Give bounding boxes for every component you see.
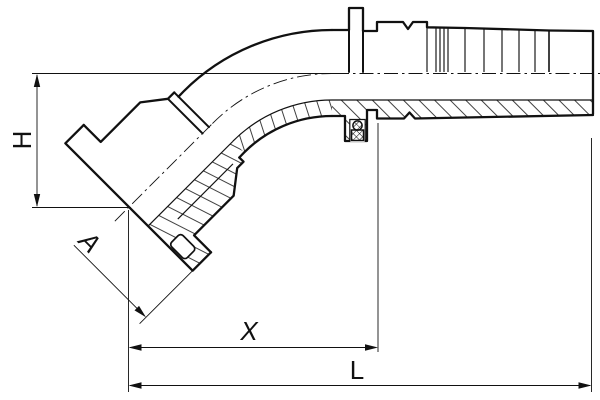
x-arrow-right <box>365 344 378 350</box>
collar-edge-lines <box>349 30 363 72</box>
x-arrow-left <box>129 344 142 350</box>
hose-tail <box>332 8 593 142</box>
weld-ring-edges <box>168 92 209 133</box>
h-label: H <box>7 131 37 150</box>
h-arrow-down <box>34 194 40 207</box>
oring-backup-ring <box>352 130 364 141</box>
flange-plate-back-upper <box>84 63 175 154</box>
a-extension-line <box>140 262 202 324</box>
dimension-X: X <box>129 123 379 392</box>
hose-tail-top-profile <box>332 8 593 114</box>
h-arrow-up <box>34 74 40 87</box>
a-label: A <box>72 224 107 259</box>
l-label: L <box>350 355 364 385</box>
dimension-H: H <box>7 74 335 208</box>
l-arrow-left <box>129 382 142 388</box>
nipple-section-hatch <box>332 100 593 141</box>
technical-drawing: H A X L <box>0 0 600 400</box>
x-label: X <box>239 316 259 346</box>
barb-ridges <box>427 27 549 72</box>
section-hatching <box>148 100 593 271</box>
elbow-outer-top-curve <box>179 30 333 97</box>
oring-assembly <box>350 120 365 143</box>
l-arrow-right <box>579 382 592 388</box>
oring-seal <box>353 121 362 130</box>
